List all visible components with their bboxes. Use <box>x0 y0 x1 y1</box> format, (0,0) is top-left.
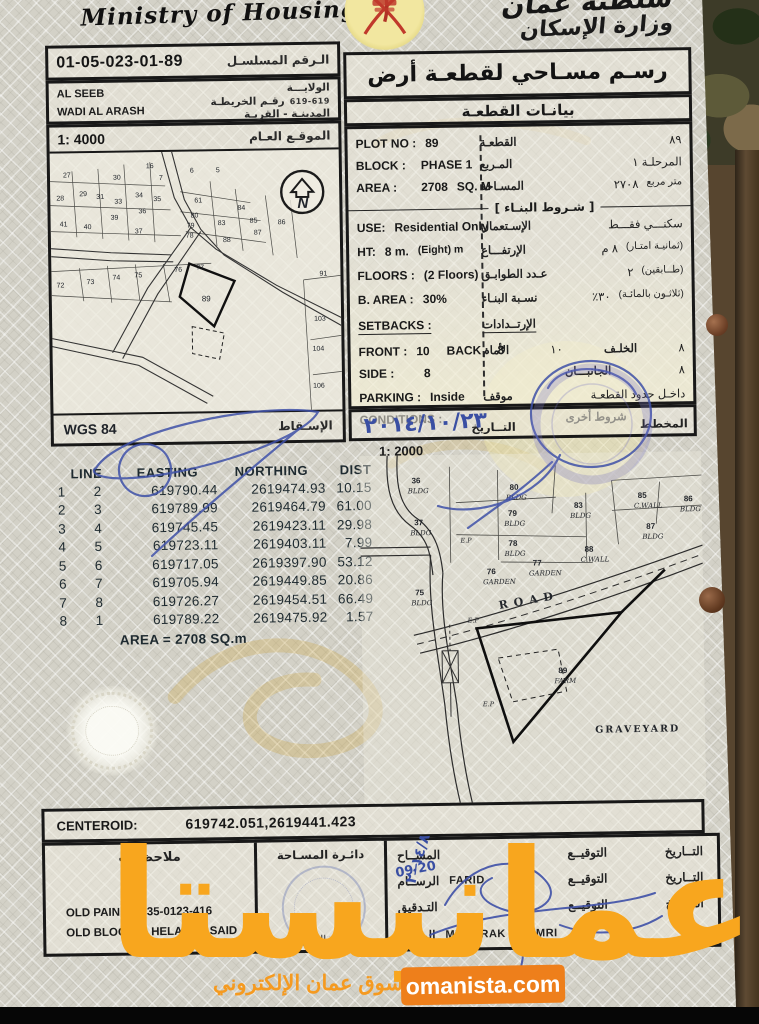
plot-number-label: 79 <box>187 223 195 230</box>
plot-number-label: 85 <box>638 491 648 500</box>
coordinates-cell: 2619474.93 <box>218 480 326 497</box>
scanned-survey-photo: Ministry of Housing سلطنة عُمان وزارة ال… <box>0 0 759 1024</box>
plot-number-label: 87 <box>254 230 262 237</box>
plot-type-label: BLDG <box>569 512 592 520</box>
overview-title-ar: الموقـع العـام <box>249 128 331 143</box>
coordinates-cell: 5 <box>78 539 118 555</box>
front-label: FRONT : <box>359 344 408 359</box>
height-row-en: HT: 8 m. (Eight) m <box>357 244 463 260</box>
plot-number-label: 74 <box>112 275 120 282</box>
map-number-label-ar: رقـم الخريطـة <box>210 95 284 108</box>
height-row-ar: الإرتفـــاع ٨ م (ثمانيـة امتـار) <box>481 240 683 257</box>
serial-number-label-ar: الـرقم المسلسـل <box>227 52 330 68</box>
plot-number-label: 61 <box>194 197 202 204</box>
plot-info-box: PLOT NO : 89 القطعـة ٨٩ BLOCK : PHASE 1 … <box>344 121 696 409</box>
overview-map-box: 1: 4000 الموقـع العـام <box>46 120 346 446</box>
plan-label-ar: المخطط <box>640 416 688 431</box>
plot-number-label: 28 <box>56 195 64 202</box>
block-label: BLOCK : <box>356 158 412 173</box>
height-value-group-ar: ٨ م (ثمانيـة امتـار) <box>601 240 683 255</box>
block-value: PHASE 1 <box>421 157 473 172</box>
plot-number-label: 36 <box>138 208 146 215</box>
plot-number-label: 84 <box>237 205 245 212</box>
plot-type-label: GARDEN <box>483 578 517 586</box>
plot-number-label: 35 <box>153 196 161 203</box>
plot-number-label: 79 <box>508 509 518 518</box>
plot-number-label: 77 <box>533 558 543 567</box>
front-back-row-ar: الأمام ١٠ الخلـف ٨ <box>482 340 684 357</box>
header-easting: EASTING <box>117 464 217 480</box>
plot-type-label: BLDG <box>641 533 664 541</box>
plot-number-label: 75 <box>134 272 142 279</box>
plot-number-label: 78 <box>186 233 194 240</box>
detail-map-drawing: E.P E.P E.P ROAD GRAVEYARD 36BLDG37BLDG8… <box>359 451 706 804</box>
plot-number-label: 31 <box>96 194 104 201</box>
map-number-row: رقـم الخريطـة 619-619 <box>210 94 330 108</box>
plot-number-label: 34 <box>135 192 143 199</box>
plot-number-label: 30 <box>113 175 121 182</box>
coordinates-cell: 6 <box>57 577 79 592</box>
plot-number-label: 36 <box>411 476 421 485</box>
coordinates-table: LINE EASTING NORTHING DIST 12619790.4426… <box>55 460 364 649</box>
plot-number-label: 6 <box>190 168 194 175</box>
divider-line <box>600 205 690 207</box>
plot-number-label: 87 <box>646 522 656 531</box>
plot-number-label: 89 <box>202 294 212 303</box>
header-northing: NORTHING <box>217 462 325 479</box>
plot-type-label: BLDG <box>410 599 433 607</box>
floors-value-ar: ٢ <box>627 265 633 279</box>
plot-number-label: 37 <box>414 518 424 527</box>
parking-row-en: PARKING : Inside <box>359 390 465 406</box>
wilayat-label-ar: الولايـــة <box>287 82 330 95</box>
plot-number-label: 83 <box>218 220 226 227</box>
floors-note-ar: (طــابقين) <box>641 264 683 279</box>
datum-value: WGS 84 <box>64 421 117 438</box>
coordinates-cell: 619789.22 <box>119 611 219 627</box>
block-row-ar: المـربع المرحلـة ١ <box>480 154 682 171</box>
plot-number-label: 80 <box>191 212 199 219</box>
plot-type-label: C.WALL <box>581 555 610 563</box>
plot-number-label: 103 <box>314 316 326 323</box>
front-value: 10 <box>416 344 430 358</box>
area-label: AREA : <box>356 180 412 195</box>
use-row-en: USE: Residential Only <box>357 219 489 235</box>
plot-type-label: GARDEN <box>529 569 563 577</box>
coordinates-cell: 2619449.85 <box>219 573 327 590</box>
plot-number-label: 5 <box>216 167 220 174</box>
plot-number-label: 77 <box>196 264 204 271</box>
plot-type-label: BLDG <box>679 505 702 513</box>
setbacks-row-ar: الإرتــدادات <box>482 314 684 333</box>
barea-label-ar: نسـبة البنـاء <box>482 290 538 305</box>
plot-number-label: 75 <box>415 588 425 597</box>
khanjar-crossed-swords-icon <box>344 0 425 52</box>
plot-no-value: 89 <box>425 136 439 150</box>
height-note: (Eight) m <box>418 244 464 259</box>
area-row-ar: المسـاحة ٢٧٠٨ متر مربع <box>480 176 682 193</box>
paper-fastener <box>706 314 728 336</box>
plot-number-label: 41 <box>60 221 68 228</box>
side-label: SIDE : <box>359 366 415 381</box>
handwritten-date: ٢٠١٤/١٠/٢٣ <box>363 408 488 439</box>
area-label-ar: المسـاحة <box>480 179 524 194</box>
coordinates-cell: 4 <box>78 520 118 536</box>
plot-number-label: 76 <box>487 567 497 576</box>
barea-value: 30% <box>423 292 447 306</box>
coordinates-cell: 619789.99 <box>118 500 218 516</box>
side-row-ar: الجانبـــان ٨ <box>565 362 685 378</box>
floors-label-ar: عـدد الطوابـق <box>481 266 547 281</box>
plot-type-label: BLDG <box>407 487 430 495</box>
north-letter: N <box>297 195 309 212</box>
barea-row-ar: نسـبة البنـاء ٣٠٪ (ثلاثـون بالمائـة) <box>482 288 684 305</box>
height-value-ar: ٨ م <box>601 241 618 255</box>
block-value-ar: المرحلـة ١ <box>632 154 682 169</box>
plot-no-value-ar: ٨٩ <box>669 132 682 146</box>
village-value: WADI AL ARASH <box>57 105 145 118</box>
wilayat-value: AL SEEB <box>57 88 105 101</box>
parking-label: PARKING : <box>359 390 421 405</box>
serial-number-box: 01-05-023-01-89 الـرقم المسلسـل <box>45 41 340 80</box>
map-number-value: 619-619 <box>290 96 330 106</box>
plot-no-label-ar: القطعـة <box>479 135 516 150</box>
coordinates-cell: 619790.44 <box>118 482 218 498</box>
coordinates-cell: 7 <box>79 576 119 592</box>
height-note-ar: (ثمانيـة امتـار) <box>626 240 683 255</box>
floors-label: FLOORS : <box>357 268 415 283</box>
coordinates-cell: 2619454.51 <box>219 591 327 608</box>
side-value-ar: ٨ <box>679 362 685 376</box>
barea-row-en: B. AREA : 30% <box>358 292 447 307</box>
coordinates-cell: 3 <box>78 502 118 518</box>
coordinates-cell: 2 <box>56 503 78 518</box>
coordinates-cell: 1 <box>79 613 119 629</box>
overview-map-drawing: N 27301676528293133343561844140393637807… <box>50 149 343 413</box>
ep-marker-label: E.P <box>467 616 480 624</box>
divider-line <box>348 208 488 211</box>
plot-number-label: 16 <box>146 163 154 170</box>
plot-no-row-ar: القطعـة ٨٩ <box>479 132 681 149</box>
plot-no-label: PLOT NO : <box>355 136 416 151</box>
block-row-en: BLOCK : PHASE 1 <box>356 157 473 173</box>
plot-number-label: 73 <box>86 279 94 286</box>
header-line: LINE <box>55 465 117 481</box>
back-label-ar: الخلـف <box>604 341 637 355</box>
plot-data-subtitle-ar: بيانـات القطعـة <box>461 100 574 120</box>
parking-label-ar: موقف <box>483 389 513 403</box>
plot-number-label: 88 <box>223 237 231 244</box>
coordinates-cell: 2619403.11 <box>218 536 326 553</box>
coordinates-cell: 2 <box>78 483 118 499</box>
block-label-ar: المـربع <box>480 157 513 171</box>
watermark-site-badge: omanista.com <box>401 965 566 1006</box>
barea-note-ar: (ثلاثـون بالمائـة) <box>619 288 684 303</box>
plot-number-label: 72 <box>57 282 65 289</box>
area-value-group-ar: ٢٧٠٨ متر مربع <box>614 176 683 191</box>
document-title-box: رسـم مسـاحي لقطعـة أرض <box>343 47 692 99</box>
setbacks-label: SETBACKS : <box>358 318 432 335</box>
overview-scale: 1: 4000 <box>57 131 105 148</box>
plot-number-label: 80 <box>510 483 520 492</box>
area-value: 2708 <box>421 180 448 194</box>
location-box: AL SEEB WADI AL ARASH الولايـــة رقـم ال… <box>46 76 342 124</box>
use-row-ar: الإسـتعمال سكنـــي فقـــط <box>481 216 683 233</box>
coordinates-cell: 8 <box>79 594 119 610</box>
front-label-ar: الأمام <box>482 343 509 357</box>
graveyard-label: GRAVEYARD <box>595 723 680 735</box>
side-label-ar: الجانبـــان <box>565 363 612 378</box>
barea-label: B. AREA : <box>358 292 414 307</box>
parking-value-ar: داخـل حدود القطعـة <box>590 386 685 401</box>
bottom-black-bar <box>0 1007 759 1024</box>
coordinates-cell: 8 <box>57 614 79 629</box>
floors-row-en: FLOORS : (2 Floors) <box>357 267 478 283</box>
plot-number-label: 27 <box>63 172 71 179</box>
back-value-ar: ٨ <box>678 340 684 354</box>
plot-number-label: 40 <box>84 224 92 231</box>
plot-number-label: 7 <box>159 175 163 182</box>
coordinates-cell: 619705.94 <box>119 574 219 590</box>
plot-number-label: 78 <box>508 539 518 548</box>
coordinates-cell: 2619397.90 <box>219 554 327 571</box>
area-unit-ar: متر مربع <box>646 176 682 191</box>
building-conditions-divider: [ شـروط البنـاء ] <box>348 198 690 217</box>
coordinates-cell: 619726.27 <box>119 593 219 609</box>
plan-date-bar: المخطط التــاريخ ٢٠١٤/١٠/٢٣ <box>348 404 696 441</box>
side-value: 8 <box>424 366 431 380</box>
setbacks-row-en: SETBACKS : <box>358 318 432 335</box>
ep-marker-label: E.P <box>459 536 472 544</box>
watermark-tagline-arabic: سوق عمان الإلكتروني <box>213 971 403 996</box>
plot-type-label: BLDG <box>505 494 528 502</box>
coordinates-cell: 6 <box>79 557 119 573</box>
area-value-ar: ٢٧٠٨ <box>614 177 639 191</box>
height-label: HT: <box>357 245 376 259</box>
coordinates-cell: 619723.11 <box>118 537 218 553</box>
datum-row: WGS 84 الإسـقاط <box>53 409 342 443</box>
serial-number-value: 01-05-023-01-89 <box>56 52 183 72</box>
plot-type-label: C.WALL <box>634 502 663 510</box>
area-row-en: AREA : 2708 SQ. M <box>356 179 491 195</box>
plot-number-label: 89 <box>558 666 568 675</box>
parking-row-ar: موقف داخـل حدود القطعـة <box>483 386 685 403</box>
coordinates-cell: 2619423.11 <box>218 517 326 534</box>
barea-value-ar: ٣٠٪ <box>592 289 611 303</box>
coordinates-cell: 3 <box>56 521 78 536</box>
plot-number-label: 85 <box>250 218 258 225</box>
projection-label-ar: الإسـقاط <box>278 418 333 433</box>
building-conditions-title-ar: [ شـروط البنـاء ] <box>494 200 594 215</box>
oman-national-emblem <box>344 0 425 52</box>
plot-number-label: 76 <box>174 267 182 274</box>
floors-value-group-ar: ٢ (طــابقين) <box>627 264 683 279</box>
plot-type-label: FARM <box>553 677 577 685</box>
document-title-ar: رسـم مسـاحي لقطعـة أرض <box>367 58 668 87</box>
barea-value-group-ar: ٣٠٪ (ثلاثـون بالمائـة) <box>592 288 684 303</box>
use-label: USE: <box>357 221 386 235</box>
plot-number-label: 86 <box>278 219 286 226</box>
plot-number-label: 33 <box>114 199 122 206</box>
coordinates-cell: 2619464.79 <box>218 499 326 516</box>
north-indicator: N <box>281 171 324 214</box>
parking-value: Inside <box>430 390 465 405</box>
plot-number-label: 37 <box>135 228 143 235</box>
plot-number-label: 91 <box>319 271 327 278</box>
coordinates-cell: 619745.45 <box>118 519 218 535</box>
use-label-ar: الإسـتعمال <box>481 219 531 234</box>
height-label-ar: الإرتفـــاع <box>481 243 526 258</box>
plot-number-label: 29 <box>79 191 87 198</box>
plot-number-label: 83 <box>574 501 584 510</box>
plot-type-label: BLDG <box>409 529 432 537</box>
coordinates-cell: 2619475.92 <box>219 610 327 627</box>
height-value: 8 m. <box>385 244 409 258</box>
coordinates-cell: 5 <box>57 558 79 573</box>
paper-fastener <box>699 587 725 613</box>
plot-type-label: BLDG <box>504 550 527 558</box>
coordinates-cell: 4 <box>56 540 78 555</box>
plot-number-label: 104 <box>313 346 325 353</box>
plot-number-label: 39 <box>111 215 119 222</box>
coordinates-cell: 619717.05 <box>119 556 219 572</box>
coordinates-cell: 7 <box>57 595 79 610</box>
plot-number-label: 88 <box>584 545 594 554</box>
city-village-label-ar: المدينـة - القريـة <box>244 107 330 120</box>
coordinates-cell: 1 <box>56 484 78 499</box>
side-row-en: SIDE : 8 <box>359 366 431 381</box>
plot-no-row-en: PLOT NO : 89 <box>355 136 438 151</box>
floors-value: (2 Floors) <box>424 267 479 282</box>
use-value-ar: سكنـــي فقـــط <box>608 216 683 231</box>
plot-number-label: 86 <box>684 494 694 503</box>
plot-number-label: 106 <box>313 383 325 390</box>
plot-type-label: BLDG <box>503 520 526 528</box>
watermark-brand-arabic: عمانيستا <box>108 828 755 986</box>
coordinates-rows: 12619790.442619474.9310.1523619789.99261… <box>56 478 364 631</box>
setbacks-label-ar: الإرتــدادات <box>482 316 536 333</box>
use-value: Residential Only <box>394 219 488 234</box>
front-value-ar: ١٠ <box>550 342 563 356</box>
ep-marker-label: E.P <box>482 700 495 708</box>
floors-row-ar: عـدد الطوابـق ٢ (طــابقين) <box>481 264 683 281</box>
